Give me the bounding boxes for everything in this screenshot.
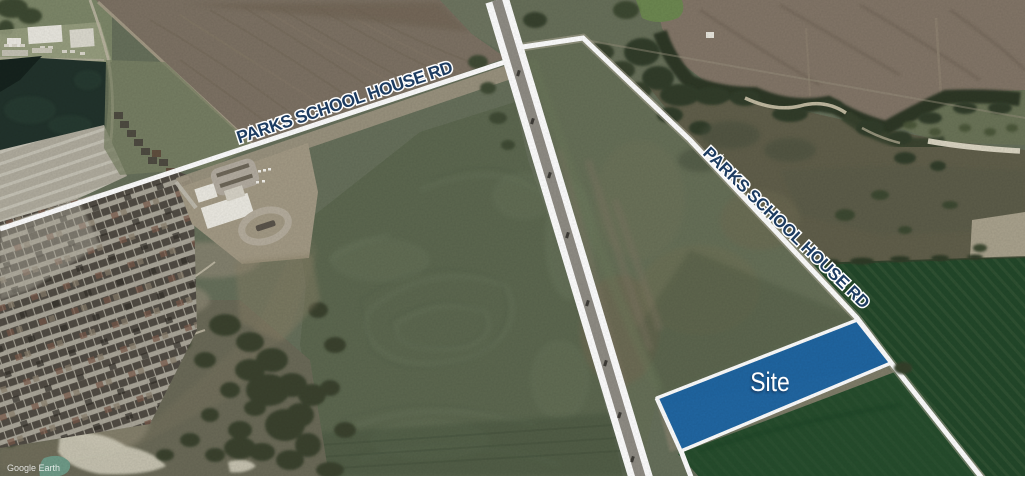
svg-text:Google Earth: Google Earth xyxy=(7,463,60,473)
svg-text:Site: Site xyxy=(750,367,790,397)
